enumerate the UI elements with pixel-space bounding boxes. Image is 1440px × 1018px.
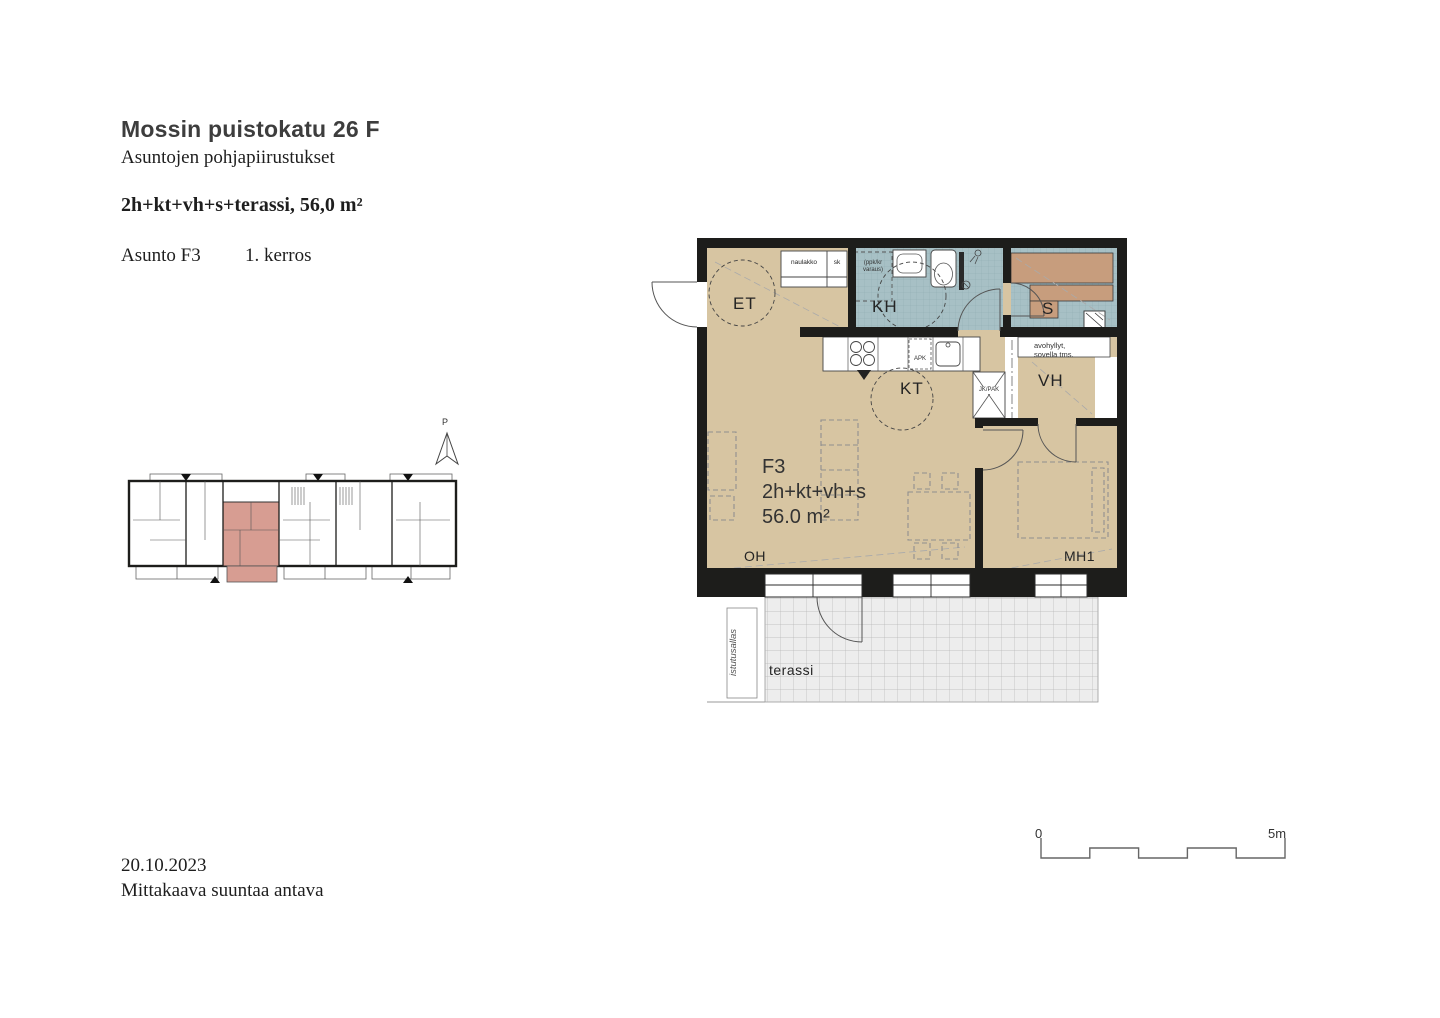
- room-label-entry: ET: [733, 294, 757, 314]
- date-label: 20.10.2023: [121, 855, 207, 877]
- north-label: P: [442, 417, 448, 427]
- room-label-closet: VH: [1038, 371, 1064, 391]
- unit-info-block: F3 2h+kt+vh+s 56.0 m²: [762, 455, 866, 530]
- overview-outline: [129, 481, 456, 566]
- room-label-sauna: S: [1042, 299, 1054, 319]
- windows: [765, 574, 1087, 597]
- window-dining: [893, 574, 970, 597]
- entry-cabinets: [781, 251, 847, 287]
- cabinet-strip: [1005, 337, 1018, 418]
- room-label-bedroom: MH1: [1064, 548, 1095, 564]
- building-overview-plan: [120, 455, 470, 595]
- annotation-dishwasher: APK: [909, 356, 931, 363]
- page-subtitle: Asuntojen pohjapiirustukset: [121, 147, 335, 169]
- overview-terraces: [136, 566, 450, 579]
- annotation-cleaning-closet: sk: [827, 259, 847, 266]
- terrace-area: [707, 597, 1098, 702]
- north-arrow-icon: [430, 428, 466, 470]
- room-label-living: OH: [744, 548, 766, 564]
- unit-area: 56.0 m²: [762, 505, 866, 530]
- window-living: [765, 574, 862, 597]
- shower-partition: [959, 252, 964, 290]
- annotation-coat-rack: naulakko: [781, 259, 827, 266]
- annotation-planter: istutusallas: [728, 612, 756, 694]
- floor-plan-sheet: Mossin puistokatu 26 F Asuntojen pohjapi…: [0, 0, 1440, 1018]
- unit-id: F3: [762, 455, 866, 480]
- room-label-terrace: terassi: [769, 662, 814, 678]
- overview-highlight-terrace: [227, 566, 277, 582]
- closet-side-strip: [1095, 357, 1117, 418]
- main-floor-plan: [600, 220, 1160, 720]
- annotation-fridge: JK/PAK: [974, 387, 1004, 394]
- room-label-bathroom: KH: [872, 297, 898, 317]
- apartment-label: Asunto F3: [121, 245, 201, 267]
- floor-label: 1. kerros: [245, 245, 311, 267]
- apartment-type-line: 2h+kt+vh+s+terassi, 56,0 m²: [121, 194, 363, 217]
- annotation-shelves: avohyllyt, sovella tms.: [1034, 341, 1074, 359]
- scale-note: Mittakaava suuntaa antava: [121, 880, 324, 902]
- scale-bar: [1030, 828, 1300, 868]
- unit-type: 2h+kt+vh+s: [762, 480, 866, 505]
- entry-door-arc: [652, 282, 697, 327]
- annotation-washer-reservation: (ppk/kr varaus): [853, 260, 893, 274]
- room-label-kitchen: KT: [900, 379, 924, 399]
- sink: [936, 342, 960, 366]
- fridge-unit: [973, 372, 1005, 418]
- page-title: Mossin puistokatu 26 F: [121, 116, 380, 143]
